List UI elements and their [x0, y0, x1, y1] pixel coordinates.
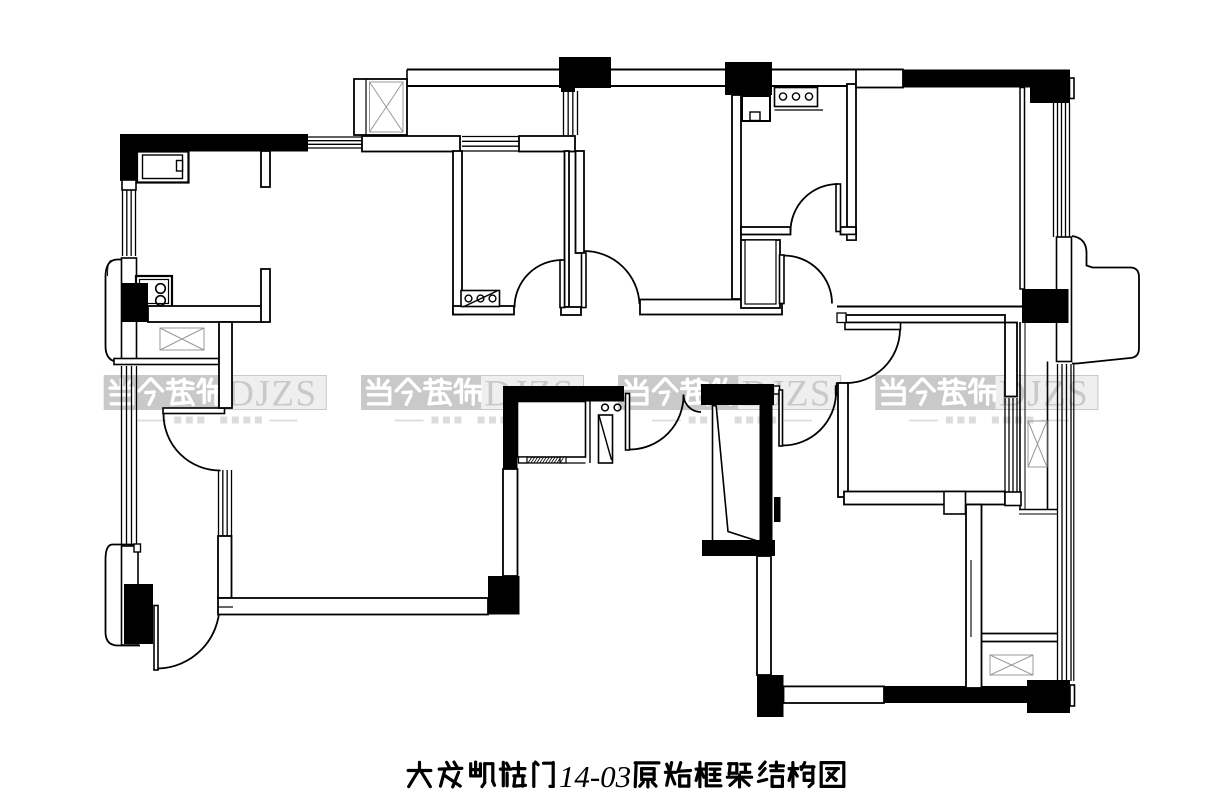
svg-text:14-03: 14-03 — [559, 759, 631, 794]
